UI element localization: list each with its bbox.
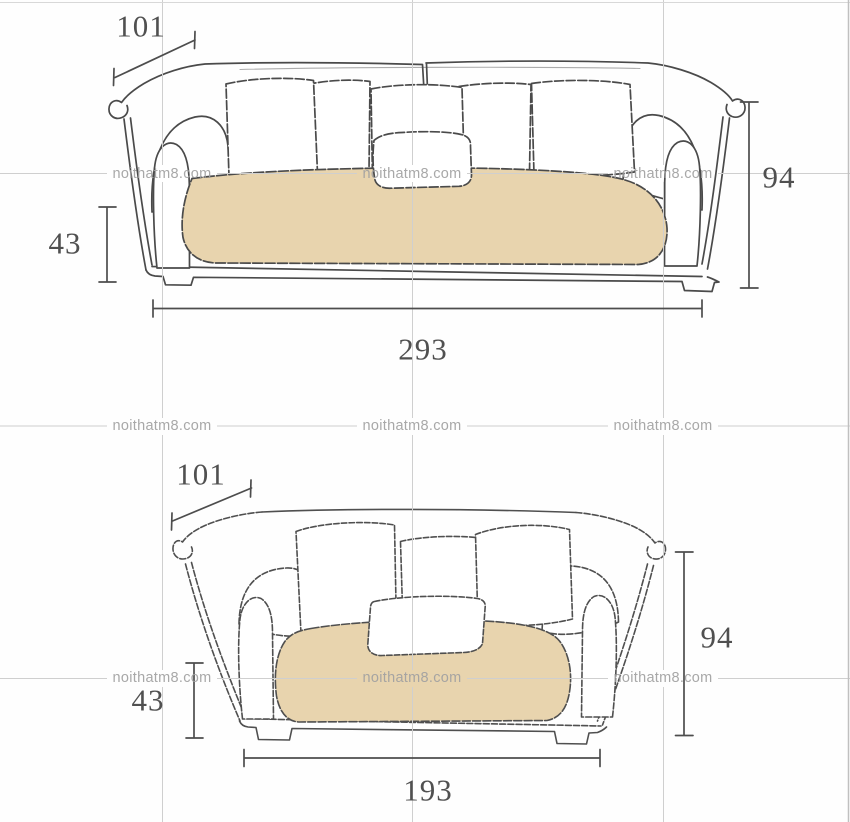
seat-height-dimension-line bbox=[99, 207, 116, 282]
right-armrest-front bbox=[665, 141, 701, 266]
pillow bbox=[532, 80, 635, 175]
width-dimension-line bbox=[244, 750, 600, 767]
watermark-text: noithatm8.com bbox=[113, 419, 212, 434]
watermark-text: noithatm8.com bbox=[363, 419, 462, 434]
lumbar-pillow bbox=[368, 596, 485, 655]
width-dimension-line bbox=[153, 300, 702, 317]
dimension-label-width-two-seater: 193 bbox=[403, 775, 453, 806]
dimension-label-height-two-seater: 94 bbox=[701, 622, 734, 653]
left-armrest-front bbox=[239, 597, 274, 719]
dimension-label-depth-two-seater: 101 bbox=[176, 459, 226, 490]
watermark-text: noithatm8.com bbox=[113, 671, 212, 686]
diagram-artwork bbox=[0, 0, 850, 822]
dimension-label-depth-three-seater: 101 bbox=[116, 11, 166, 42]
watermark-text: noithatm8.com bbox=[614, 419, 713, 434]
height-dimension-line bbox=[741, 102, 759, 288]
dimension-label-seat-height-two-seater: 43 bbox=[132, 685, 165, 716]
watermark-text: noithatm8.com bbox=[614, 167, 713, 182]
watermark-text: noithatm8.com bbox=[363, 167, 462, 182]
watermark-text: noithatm8.com bbox=[614, 671, 713, 686]
pillow bbox=[476, 525, 573, 626]
dimension-label-height-three-seater: 94 bbox=[763, 162, 796, 193]
pillow bbox=[226, 78, 318, 177]
watermark-text: noithatm8.com bbox=[113, 167, 212, 182]
right-armrest-front bbox=[582, 595, 617, 717]
sofa-dimension-diagram: 101 43 94 293 101 43 94 193 noithatm8.co… bbox=[0, 0, 850, 822]
watermark-text: noithatm8.com bbox=[363, 671, 462, 686]
sofa-back-edge bbox=[262, 509, 576, 512]
two-seater-sketch bbox=[173, 509, 666, 744]
dimension-label-width-three-seater: 293 bbox=[398, 334, 448, 365]
height-dimension-line bbox=[676, 552, 694, 736]
dimension-label-seat-height-three-seater: 43 bbox=[49, 228, 82, 259]
base-and-feet bbox=[146, 270, 719, 292]
frame-echo bbox=[240, 67, 640, 69]
